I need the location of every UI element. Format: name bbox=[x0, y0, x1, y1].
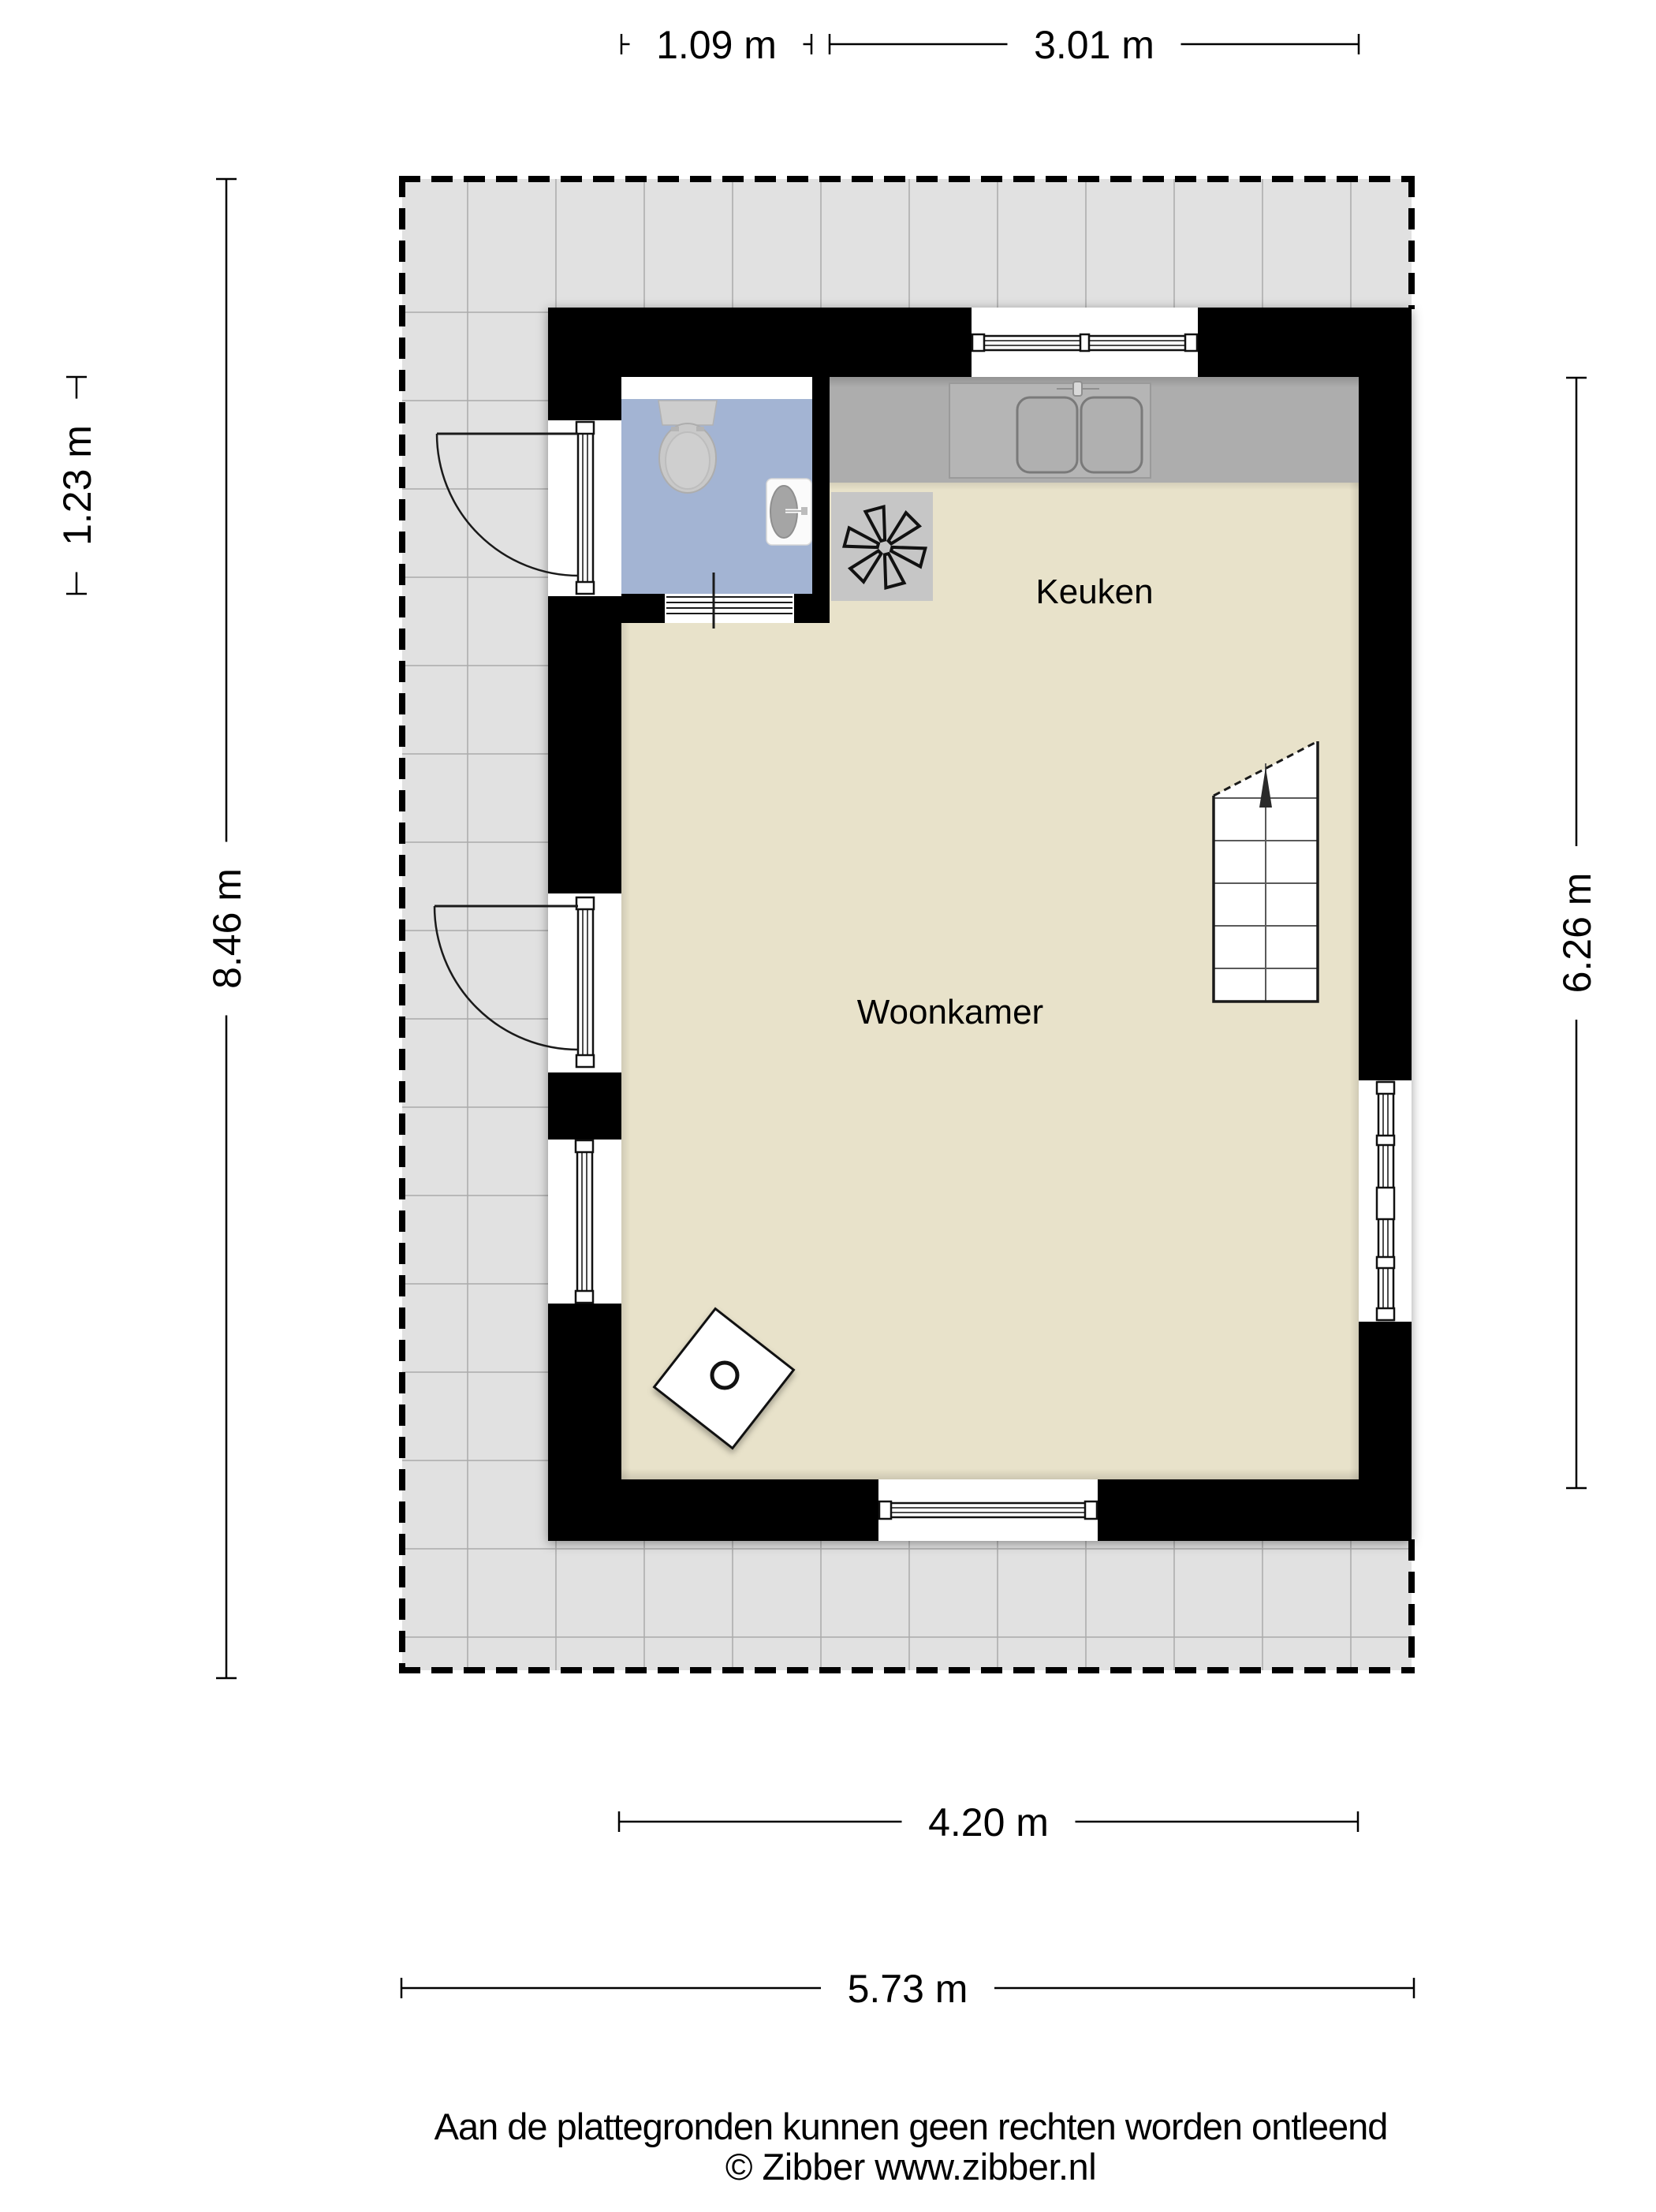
svg-text:Aan de plattegronden kunnen ge: Aan de plattegronden kunnen geen rechten… bbox=[435, 2106, 1388, 2147]
svg-text:Woonkamer: Woonkamer bbox=[857, 993, 1043, 1031]
svg-text:4.20 m: 4.20 m bbox=[928, 1800, 1049, 1845]
svg-text:5.73 m: 5.73 m bbox=[848, 1967, 968, 2011]
svg-text:6.26 m: 6.26 m bbox=[1555, 873, 1599, 994]
svg-text:8.46 m: 8.46 m bbox=[205, 868, 249, 989]
svg-text:3.01 m: 3.01 m bbox=[1034, 23, 1154, 67]
svg-text:Keuken: Keuken bbox=[1035, 573, 1153, 611]
svg-text:© Zibber www.zibber.nl: © Zibber www.zibber.nl bbox=[725, 2146, 1096, 2188]
svg-text:1.23 m: 1.23 m bbox=[55, 425, 99, 546]
svg-text:1.09 m: 1.09 m bbox=[656, 23, 777, 67]
